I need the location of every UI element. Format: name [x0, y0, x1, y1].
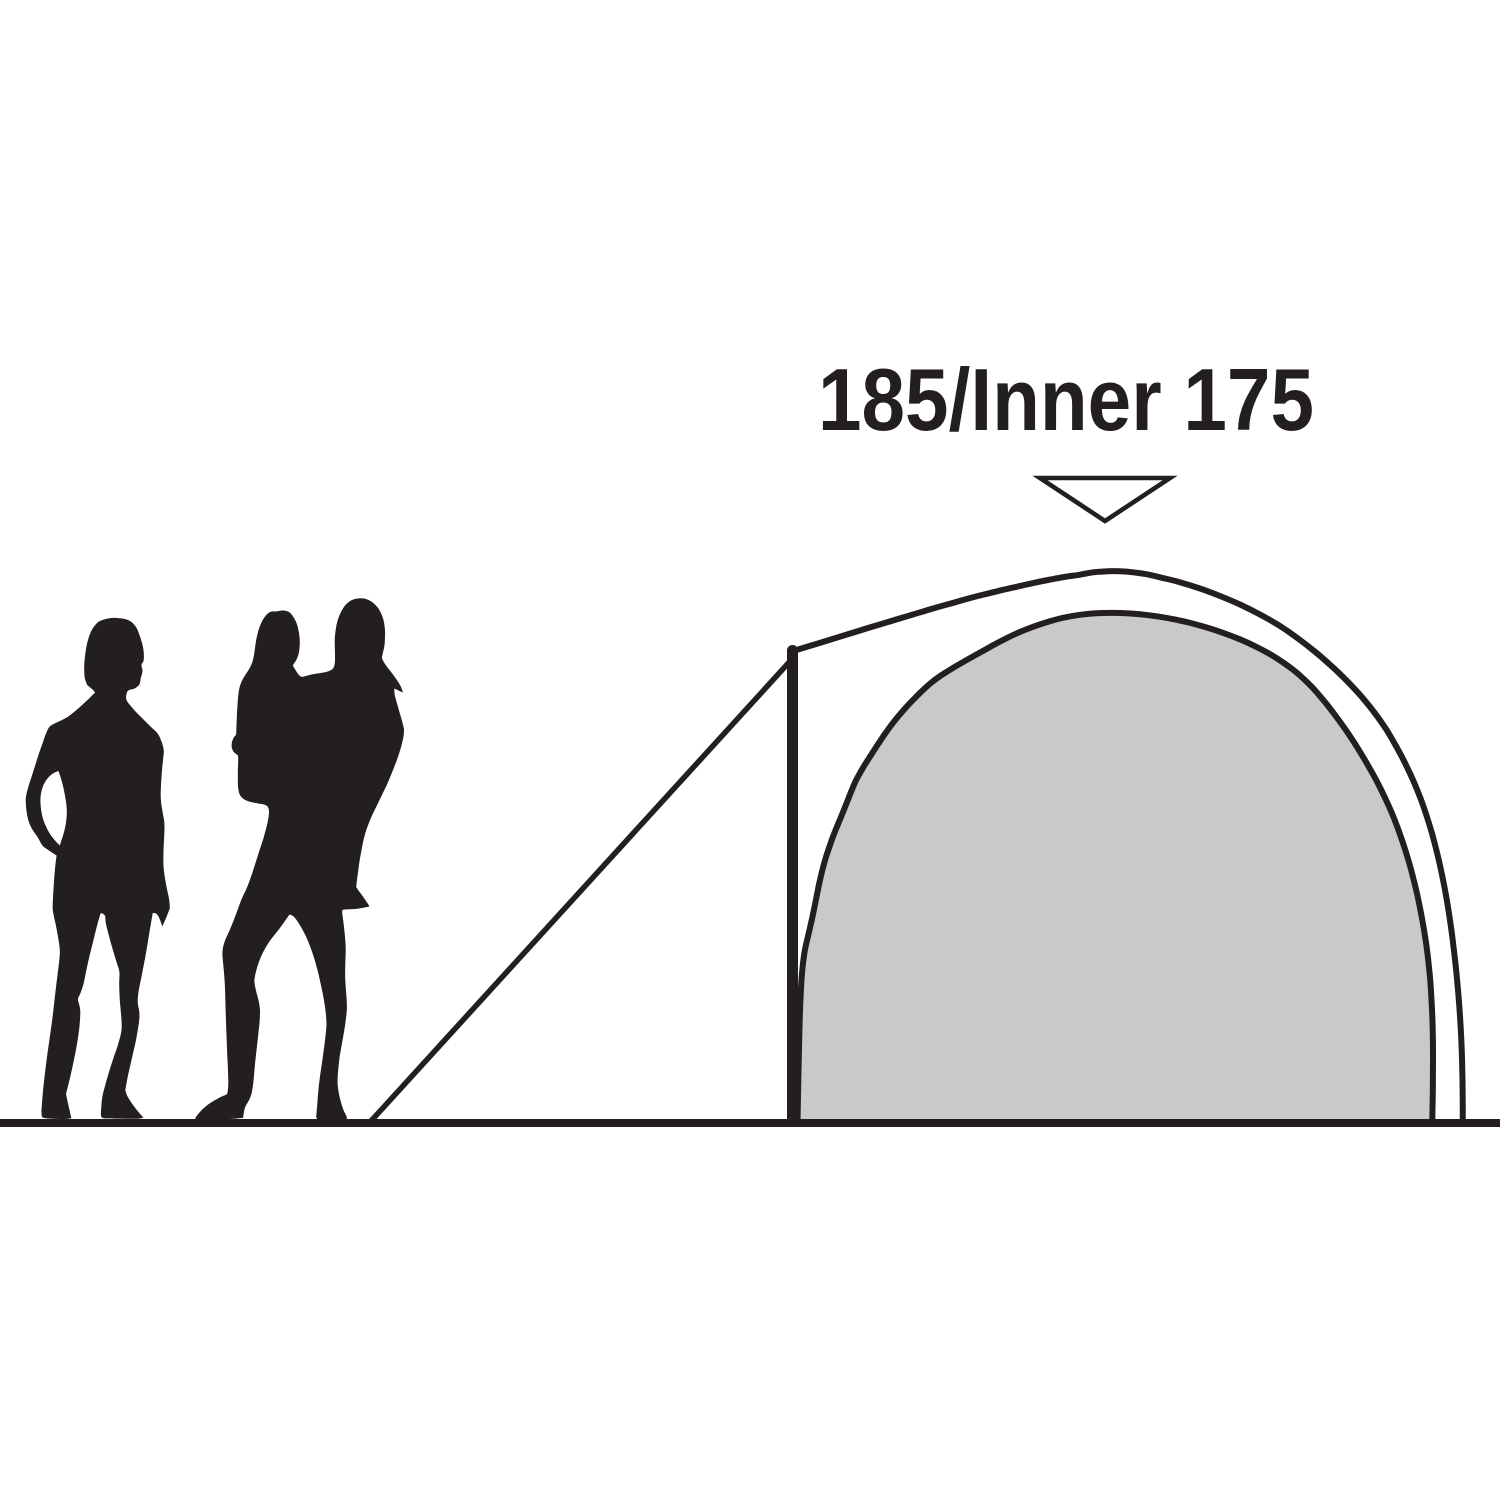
- svg-text:185/Inner 175: 185/Inner 175: [818, 350, 1314, 449]
